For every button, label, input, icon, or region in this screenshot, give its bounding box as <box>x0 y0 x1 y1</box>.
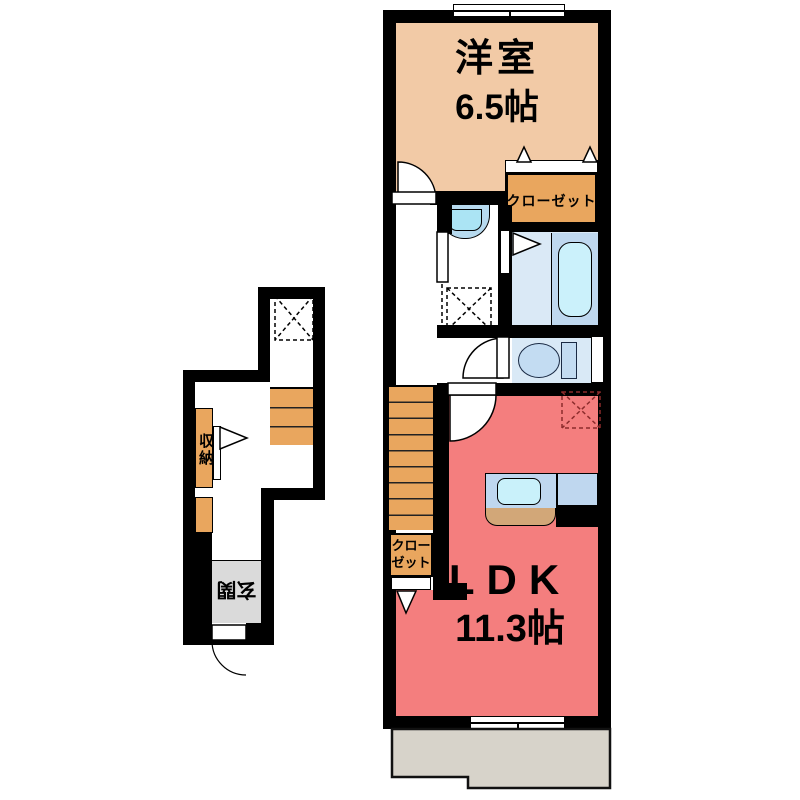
ldk-door-leaf <box>448 383 496 395</box>
floor-plan: 洋室 6.5帖 クローゼット クロー ゼット LDK 11.3帖 バル <box>0 0 800 800</box>
fridge-space <box>562 392 600 428</box>
ldk-door-swing <box>450 395 496 441</box>
washroom-sliding-door <box>437 232 448 282</box>
toilet-door-leaf <box>497 337 509 378</box>
closet-upper-door-arrow-left <box>517 147 531 162</box>
western-door-leaf <box>392 192 436 204</box>
balcony-outline <box>392 729 610 788</box>
annex-open-space <box>275 296 313 340</box>
storage-door-arrow <box>220 427 247 449</box>
entrance-door-swing <box>212 641 246 675</box>
entrance-door-leaf <box>212 625 246 640</box>
closet-upper-door-arrow-right <box>583 147 597 162</box>
bathroom-door-arrow <box>513 233 540 255</box>
washer-pan <box>447 288 491 330</box>
plan-symbols <box>0 0 800 800</box>
closet-ldk-door-arrow <box>397 591 416 613</box>
